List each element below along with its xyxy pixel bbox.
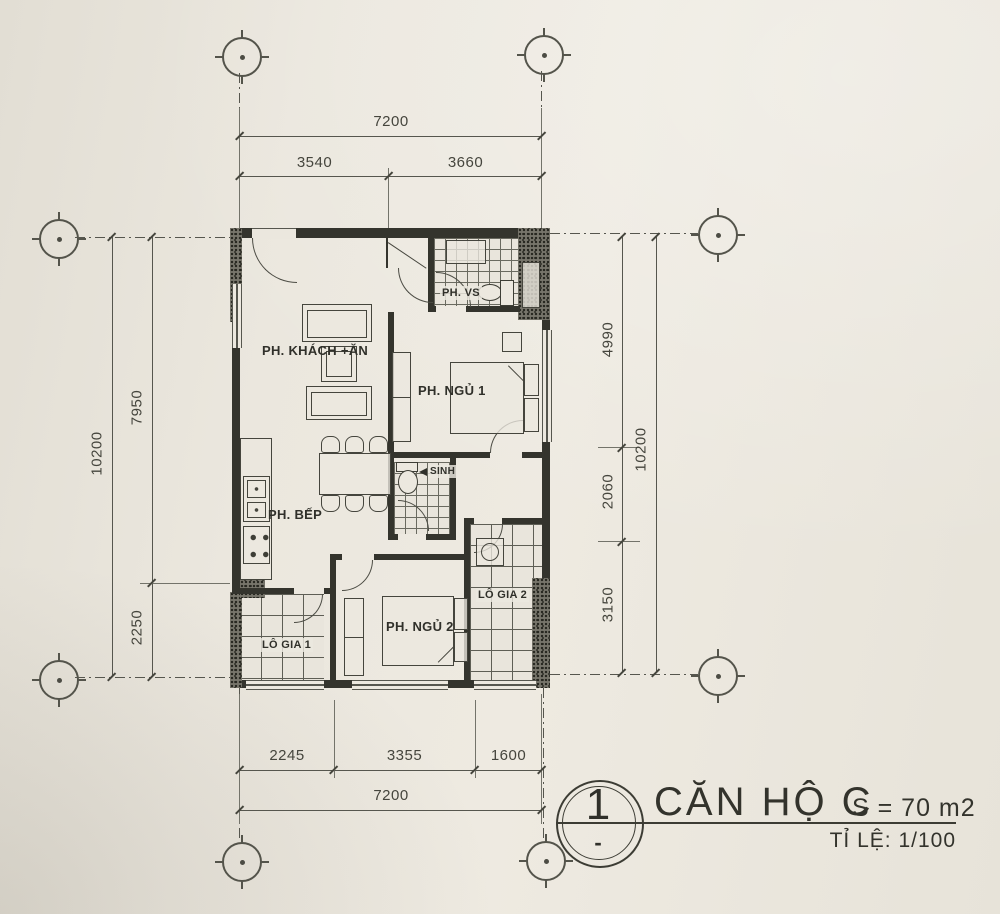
dim-line <box>240 770 542 771</box>
dining-chair <box>321 495 340 512</box>
wall-pier <box>532 578 550 688</box>
wall-segment <box>324 588 330 594</box>
wall-segment <box>428 306 436 312</box>
floor-plan-sheet: 7200 3540 3660 10200 7950 2250 4990 2060… <box>0 0 1000 914</box>
toilet-tank <box>500 280 514 306</box>
grid-axis-line <box>75 237 232 238</box>
dim-label: 2060 <box>601 462 616 522</box>
bubble-center-mark-icon <box>716 233 721 238</box>
nightstand <box>454 598 468 630</box>
grid-bubble-icon <box>524 35 564 75</box>
grid-axis-line <box>550 674 698 675</box>
bubble-tick-icon <box>215 56 224 58</box>
bubble-tick-icon <box>543 28 545 37</box>
kitchen-label: PH. BẾP <box>268 508 322 522</box>
dining-chair <box>369 495 388 512</box>
dim-label: 4990 <box>601 310 616 370</box>
toilet <box>398 470 418 494</box>
bubble-tick-icon <box>519 860 528 862</box>
nightstand <box>524 364 539 396</box>
kitchen-sink <box>243 476 270 522</box>
bathroom2-arrow-icon <box>419 468 427 476</box>
dim-label: 3660 <box>389 155 542 170</box>
sofa <box>302 304 372 342</box>
service-shaft <box>522 262 540 308</box>
wardrobe <box>344 598 364 676</box>
wall-segment <box>232 588 294 594</box>
wall-segment <box>374 554 470 560</box>
entry-closet-line <box>388 242 427 269</box>
detail-mark: - <box>556 832 640 854</box>
wall-segment <box>502 518 550 524</box>
grid-bubble-icon <box>222 842 262 882</box>
dim-line <box>240 136 542 137</box>
bubble-tick-icon <box>215 861 224 863</box>
grid-bubble-icon <box>222 37 262 77</box>
bubble-tick-icon <box>58 653 60 662</box>
dim-line <box>240 810 542 811</box>
loggia2-label: LÔ GIA 2 <box>476 588 529 602</box>
window <box>352 680 448 690</box>
bubble-tick-icon <box>32 238 41 240</box>
dim-line <box>152 237 153 677</box>
bubble-tick-icon <box>241 30 243 39</box>
grid-axis-line <box>75 677 232 678</box>
bedroom2-door-arc <box>342 560 373 591</box>
drawing-area: S = 70 m2 <box>852 796 976 821</box>
grid-bubble-icon <box>698 656 738 696</box>
dim-tick-icon <box>617 668 626 677</box>
grid-bubble-icon <box>698 215 738 255</box>
dim-label: 7950 <box>130 378 145 438</box>
dim-label: 2245 <box>240 748 334 763</box>
dim-label: 7200 <box>240 788 542 803</box>
dim-extension-line <box>140 583 230 584</box>
bedroom2-label: PH. NGỦ 2 <box>386 620 454 634</box>
drawing-title: CĂN HỘ C <box>654 782 874 822</box>
entry-door-arc <box>252 238 297 283</box>
wall-segment <box>388 452 490 458</box>
bubble-center-mark-icon <box>544 859 549 864</box>
dim-label: 1600 <box>475 748 542 763</box>
living-room-label: PH. KHÁCH +ĂN <box>262 344 368 358</box>
window <box>246 680 324 690</box>
dim-label: 3540 <box>240 155 389 170</box>
bubble-center-mark-icon <box>240 860 245 865</box>
wall-segment <box>522 452 550 458</box>
bathroom2-label: SINH <box>428 465 457 478</box>
bubble-tick-icon <box>241 835 243 844</box>
bubble-center-mark-icon <box>542 53 547 58</box>
bubble-tick-icon <box>32 679 41 681</box>
dim-line <box>622 237 623 673</box>
bubble-center-mark-icon <box>57 678 62 683</box>
dim-label: 2250 <box>130 598 145 658</box>
window <box>542 330 552 442</box>
bubble-tick-icon <box>517 54 526 56</box>
wardrobe <box>392 352 411 442</box>
window <box>474 680 536 690</box>
bedroom1-label: PH. NGỦ 1 <box>418 384 486 398</box>
bathroom1-label: PH. VS <box>440 286 482 300</box>
hall-door-arc <box>398 268 433 303</box>
bubble-tick-icon <box>545 834 547 843</box>
dining-table <box>319 453 391 495</box>
wall-segment <box>466 306 520 312</box>
nightstand <box>454 632 468 662</box>
wall-segment <box>388 534 398 540</box>
nightstand <box>524 398 539 432</box>
bubble-center-mark-icon <box>57 237 62 242</box>
dim-line <box>240 176 542 177</box>
bubble-tick-icon <box>717 208 719 217</box>
bathroom1-vanity <box>446 240 486 264</box>
dim-label: 3355 <box>334 748 475 763</box>
dining-chair <box>321 436 340 453</box>
stool <box>502 332 522 352</box>
bubble-center-mark-icon <box>716 674 721 679</box>
bubble-tick-icon <box>58 212 60 221</box>
bubble-tick-icon <box>691 234 700 236</box>
dining-chair <box>345 495 364 512</box>
bubble-tick-icon <box>691 675 700 677</box>
dim-line <box>656 237 657 673</box>
wall-segment <box>426 534 456 540</box>
washing-machine <box>476 538 504 566</box>
wall-segment <box>330 560 336 680</box>
drawing-scale: TỈ LỆ: 1/100 <box>770 830 956 851</box>
dining-chair <box>345 436 364 453</box>
grid-bubble-icon <box>39 219 79 259</box>
grid-bubble-icon <box>39 660 79 700</box>
window <box>232 284 242 348</box>
detail-number: 1 <box>556 783 640 827</box>
dim-line <box>112 237 113 677</box>
dining-chair <box>369 436 388 453</box>
sofa <box>306 386 372 420</box>
wall-pier <box>230 592 242 688</box>
kitchen-stove <box>243 526 270 564</box>
dim-label: 10200 <box>90 424 105 484</box>
bubble-tick-icon <box>717 649 719 658</box>
dim-label: 7200 <box>240 114 542 129</box>
dim-label: 3150 <box>601 575 616 635</box>
loggia1-label: LÔ GIA 1 <box>260 638 313 652</box>
bubble-center-mark-icon <box>240 55 245 60</box>
wall-segment <box>296 228 434 238</box>
dim-tick-icon <box>651 668 660 677</box>
dim-label: 10200 <box>634 420 649 480</box>
